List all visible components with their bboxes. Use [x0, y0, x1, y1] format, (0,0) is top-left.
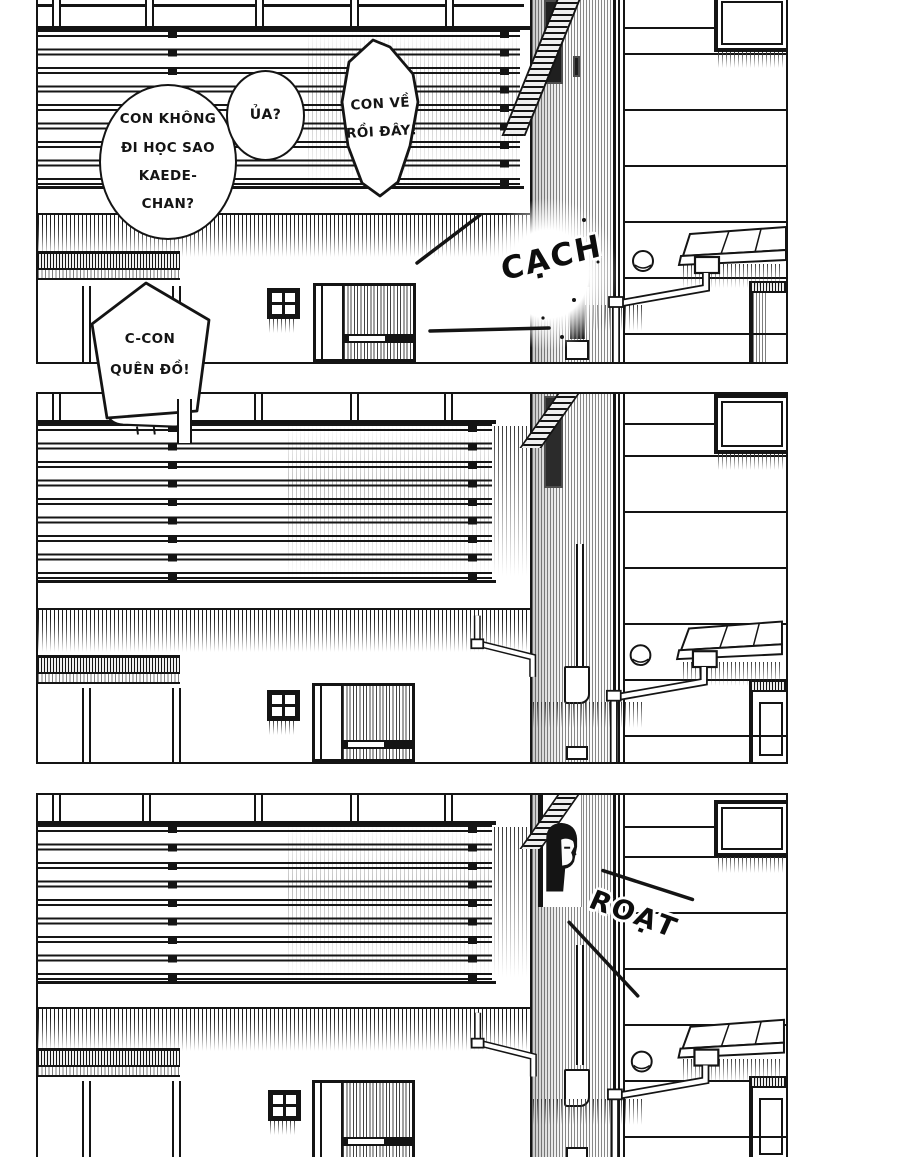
railing-post [52, 394, 61, 421]
sliding-door [313, 283, 416, 362]
utility-box [566, 1147, 588, 1157]
upper-window [714, 394, 788, 454]
speech-line: CHAN? [120, 190, 217, 218]
speech-line: ĐI HỌC SAO [120, 134, 217, 162]
slit-vent [573, 56, 580, 77]
railing-post [444, 394, 453, 421]
panel-3: ROẠT [36, 793, 788, 1157]
balcony-base-line [38, 580, 496, 583]
side-gate [749, 281, 786, 362]
sliding-door [312, 1080, 415, 1157]
speech-text: CON VỀ RỒI ĐÂY! [337, 88, 426, 149]
speech-line: CON KHÔNG [120, 105, 217, 133]
carport-post [82, 688, 91, 764]
carport-fascia [38, 1065, 180, 1077]
door-jamb-line [320, 686, 322, 759]
speech-line: KAEDE- [120, 162, 217, 190]
gate-frame [749, 1088, 753, 1157]
window-drip-hatch [269, 721, 297, 735]
window-drip-hatch [718, 857, 784, 873]
window-drip-hatch [718, 454, 784, 470]
speech-line: RỒI ĐÂY! [338, 116, 425, 149]
railing-rail [38, 821, 496, 825]
window-mullion [272, 302, 295, 305]
speech-line: ỦA? [250, 107, 282, 123]
panel-2 [36, 392, 788, 764]
railing-post [52, 0, 61, 27]
pipe-drip-hatch [533, 1099, 645, 1125]
gate-inner-frame [759, 702, 783, 756]
upper-window-frame [721, 1, 783, 45]
speech-bubble-forgot: C-CON QUÊN ĐỒ! [86, 278, 214, 426]
railing-post [350, 0, 359, 27]
side-gate [749, 680, 786, 762]
manga-page: CẠCH [0, 0, 900, 1157]
gate-stripes [753, 293, 766, 362]
railing-post [350, 394, 359, 421]
speech-bubble-ua: ỦA? [226, 70, 305, 161]
railing-post [445, 0, 454, 27]
side-gate [749, 1076, 786, 1157]
sliding-door [312, 683, 415, 762]
door-jamb [316, 286, 344, 359]
window-drip-hatch [270, 1121, 298, 1135]
slat-joint [168, 825, 177, 981]
carport-fascia [38, 672, 180, 684]
carport-roof [38, 1048, 180, 1077]
slat-joint [168, 424, 177, 580]
door-handle-slot [348, 742, 384, 747]
carport-roof [38, 655, 180, 684]
awning-drip-hatch [683, 264, 783, 288]
door-handle [344, 334, 413, 343]
pipe-drip-hatch [533, 702, 645, 728]
door-handle [343, 1137, 412, 1146]
gate-inner-frame [759, 1098, 783, 1155]
window-mullion [272, 704, 295, 707]
upper-window-frame [721, 401, 783, 447]
carport-hatch [38, 1048, 180, 1065]
gate-frame [749, 692, 753, 762]
awning-drip-hatch [683, 1059, 783, 1083]
door-jamb [315, 686, 343, 759]
corner-drip-hatch [494, 827, 530, 977]
window-drip-hatch [718, 52, 784, 68]
speech-text: CON KHÔNG ĐI HỌC SAO KAEDE- CHAN? [120, 105, 217, 218]
slat-shading [288, 424, 492, 580]
carport-post [82, 1081, 91, 1157]
awning-drip-hatch [683, 662, 783, 686]
small-window [268, 1090, 301, 1121]
slat-shading [288, 825, 492, 981]
railing-post [142, 795, 151, 822]
small-window [267, 690, 300, 721]
railing-post [254, 394, 263, 421]
small-window [267, 288, 300, 319]
carport-roof [38, 251, 180, 280]
carport-post [172, 1081, 181, 1157]
door-handle-slot [349, 336, 385, 341]
door-jamb-line [321, 286, 323, 359]
speech-line: CON VỀ [337, 88, 424, 121]
railing-rail [38, 26, 530, 30]
window-drip-hatch [269, 319, 297, 333]
speech-text: C-CON QUÊN ĐỒ! [86, 324, 214, 386]
speech-bubble-tail [177, 399, 192, 443]
wall-pipe [576, 544, 584, 666]
balcony-shadow-hatch [38, 1007, 530, 1051]
carport-post [172, 688, 181, 764]
upper-window [714, 0, 788, 52]
speech-bubble-announce: CON VỀ RỒI ĐÂY! [338, 34, 424, 200]
utility-box [566, 746, 588, 760]
railing-post [254, 795, 263, 822]
railing-post [255, 0, 264, 27]
speech-text: ỦA? [250, 101, 282, 130]
balcony-shadow-hatch [38, 608, 530, 652]
door-jamb [315, 1083, 343, 1157]
corner-drip-hatch [494, 426, 530, 576]
carport-hatch [38, 655, 180, 672]
door-handle-slot [348, 1139, 384, 1144]
carport-hatch [38, 251, 180, 268]
door-jamb-line [320, 1083, 322, 1157]
door-leaf [344, 286, 413, 359]
upper-window [714, 800, 788, 857]
speech-bubble-question: CON KHÔNG ĐI HỌC SAO KAEDE- CHAN? [99, 84, 237, 240]
speech-line: C-CON [86, 324, 214, 355]
railing-post [444, 795, 453, 822]
meter-box [564, 666, 590, 704]
railing-post [52, 795, 61, 822]
door-handle [343, 740, 412, 749]
balcony-base-line [38, 981, 496, 984]
railing-post [350, 795, 359, 822]
window-mullion [273, 1104, 296, 1107]
wall-pipe [576, 945, 584, 1065]
railing-post [145, 0, 154, 27]
speech-line: QUÊN ĐỒ! [86, 355, 214, 386]
upper-window-frame [721, 807, 783, 850]
